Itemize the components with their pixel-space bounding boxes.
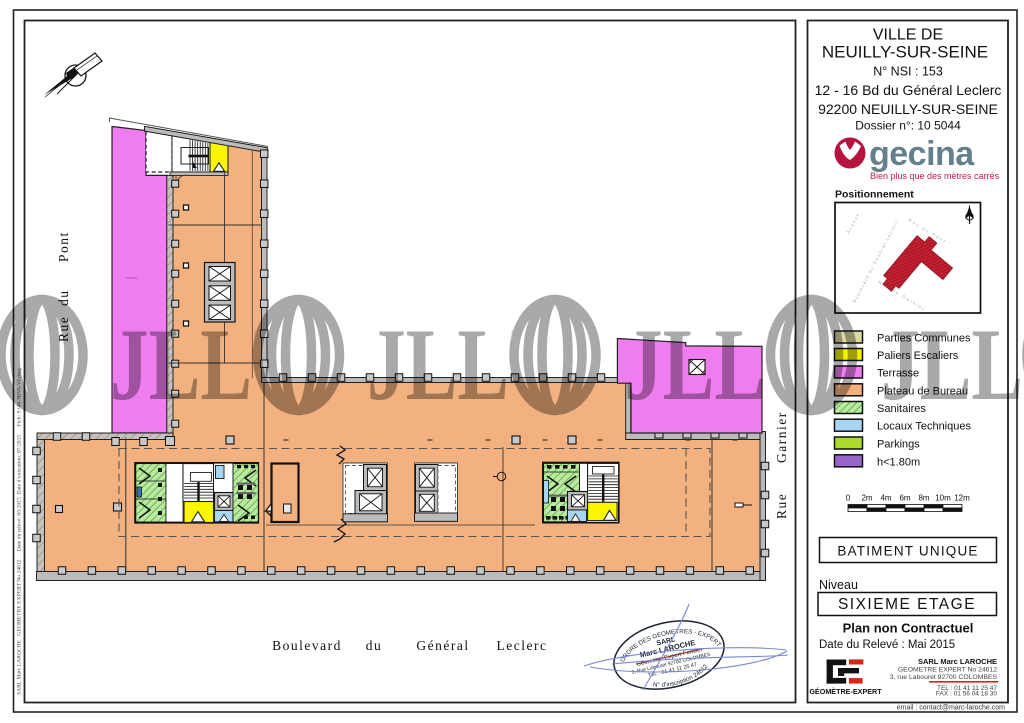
- svg-text:Plan non Contractuel: Plan non Contractuel: [843, 621, 974, 636]
- svg-text:Date du Relevé : Mai 2015: Date du Relevé : Mai 2015: [819, 639, 955, 651]
- svg-text:GÉOMÈTRE-EXPERT: GÉOMÈTRE-EXPERT: [809, 687, 882, 696]
- svg-text:gecina: gecina: [869, 135, 975, 173]
- svg-text:12 - 16 Bd du Général Leclerc: 12 - 16 Bd du Général Leclerc: [815, 82, 1002, 98]
- svg-text:du: du: [366, 638, 383, 653]
- svg-text:Bien plus que des mètres carré: Bien plus que des mètres carrés: [870, 171, 1000, 181]
- svg-text:®: ®: [768, 327, 779, 342]
- svg-text:SARL Marc LAROCHE GEOMETRE E: SARL Marc LAROCHE GEOMETRE EXPERT No 246…: [17, 368, 23, 695]
- svg-text:10m: 10m: [935, 494, 951, 503]
- svg-text:SARL Marc LAROCHE: SARL Marc LAROCHE: [918, 657, 997, 666]
- svg-text:NEUILLY-SUR-SEINE: NEUILLY-SUR-SEINE: [822, 43, 988, 62]
- svg-text:Garnier: Garnier: [774, 411, 789, 463]
- svg-text:GEOMETRE EXPERT No 24612: GEOMETRE EXPERT No 24612: [898, 667, 997, 674]
- svg-text:N° NSI : 153: N° NSI : 153: [873, 65, 943, 79]
- svg-text:6m: 6m: [899, 494, 910, 503]
- svg-text:Leclerc: Leclerc: [497, 638, 548, 653]
- svg-text:Parkings: Parkings: [877, 439, 920, 451]
- svg-text:VILLE DE: VILLE DE: [873, 27, 943, 44]
- svg-text:92200 NEUILLY-SUR-SEINE: 92200 NEUILLY-SUR-SEINE: [818, 101, 998, 117]
- svg-text:h<1.80m: h<1.80m: [877, 456, 920, 468]
- svg-text:BATIMENT UNIQUE: BATIMENT UNIQUE: [837, 544, 978, 559]
- svg-text:FAX : 01 56 04 18 30: FAX : 01 56 04 18 30: [936, 691, 997, 698]
- svg-text:Dossier n°: 10 5044: Dossier n°: 10 5044: [855, 119, 961, 133]
- svg-text:®: ®: [511, 327, 522, 342]
- svg-text:JLL: JLL: [110, 308, 252, 422]
- svg-text:Général: Général: [416, 638, 469, 653]
- svg-text:Rue: Rue: [774, 493, 789, 519]
- svg-text:JLL: JLL: [367, 308, 509, 422]
- svg-text:SIXIEME ETAGE: SIXIEME ETAGE: [838, 596, 976, 613]
- svg-text:Positionnement: Positionnement: [835, 189, 914, 201]
- svg-text:0: 0: [846, 494, 851, 503]
- svg-text:2m: 2m: [861, 494, 872, 503]
- svg-text:8m: 8m: [918, 494, 929, 503]
- svg-text:4m: 4m: [880, 494, 891, 503]
- svg-text:Pont: Pont: [56, 231, 71, 262]
- svg-text:Niveau: Niveau: [819, 578, 858, 592]
- svg-text:12m: 12m: [954, 494, 970, 503]
- svg-text:JLL: JLL: [881, 308, 1023, 422]
- svg-text:JLL: JLL: [624, 308, 766, 422]
- svg-text:email : contact@marc-laroche.c: email : contact@marc-laroche.com: [897, 705, 1005, 712]
- svg-text:®: ®: [254, 327, 265, 342]
- svg-text:3, rue Labouret 92700 COLOMBES: 3, rue Labouret 92700 COLOMBES: [890, 674, 998, 681]
- svg-text:Boulevard: Boulevard: [272, 638, 342, 653]
- svg-text:Locaux Techniques: Locaux Techniques: [877, 421, 971, 433]
